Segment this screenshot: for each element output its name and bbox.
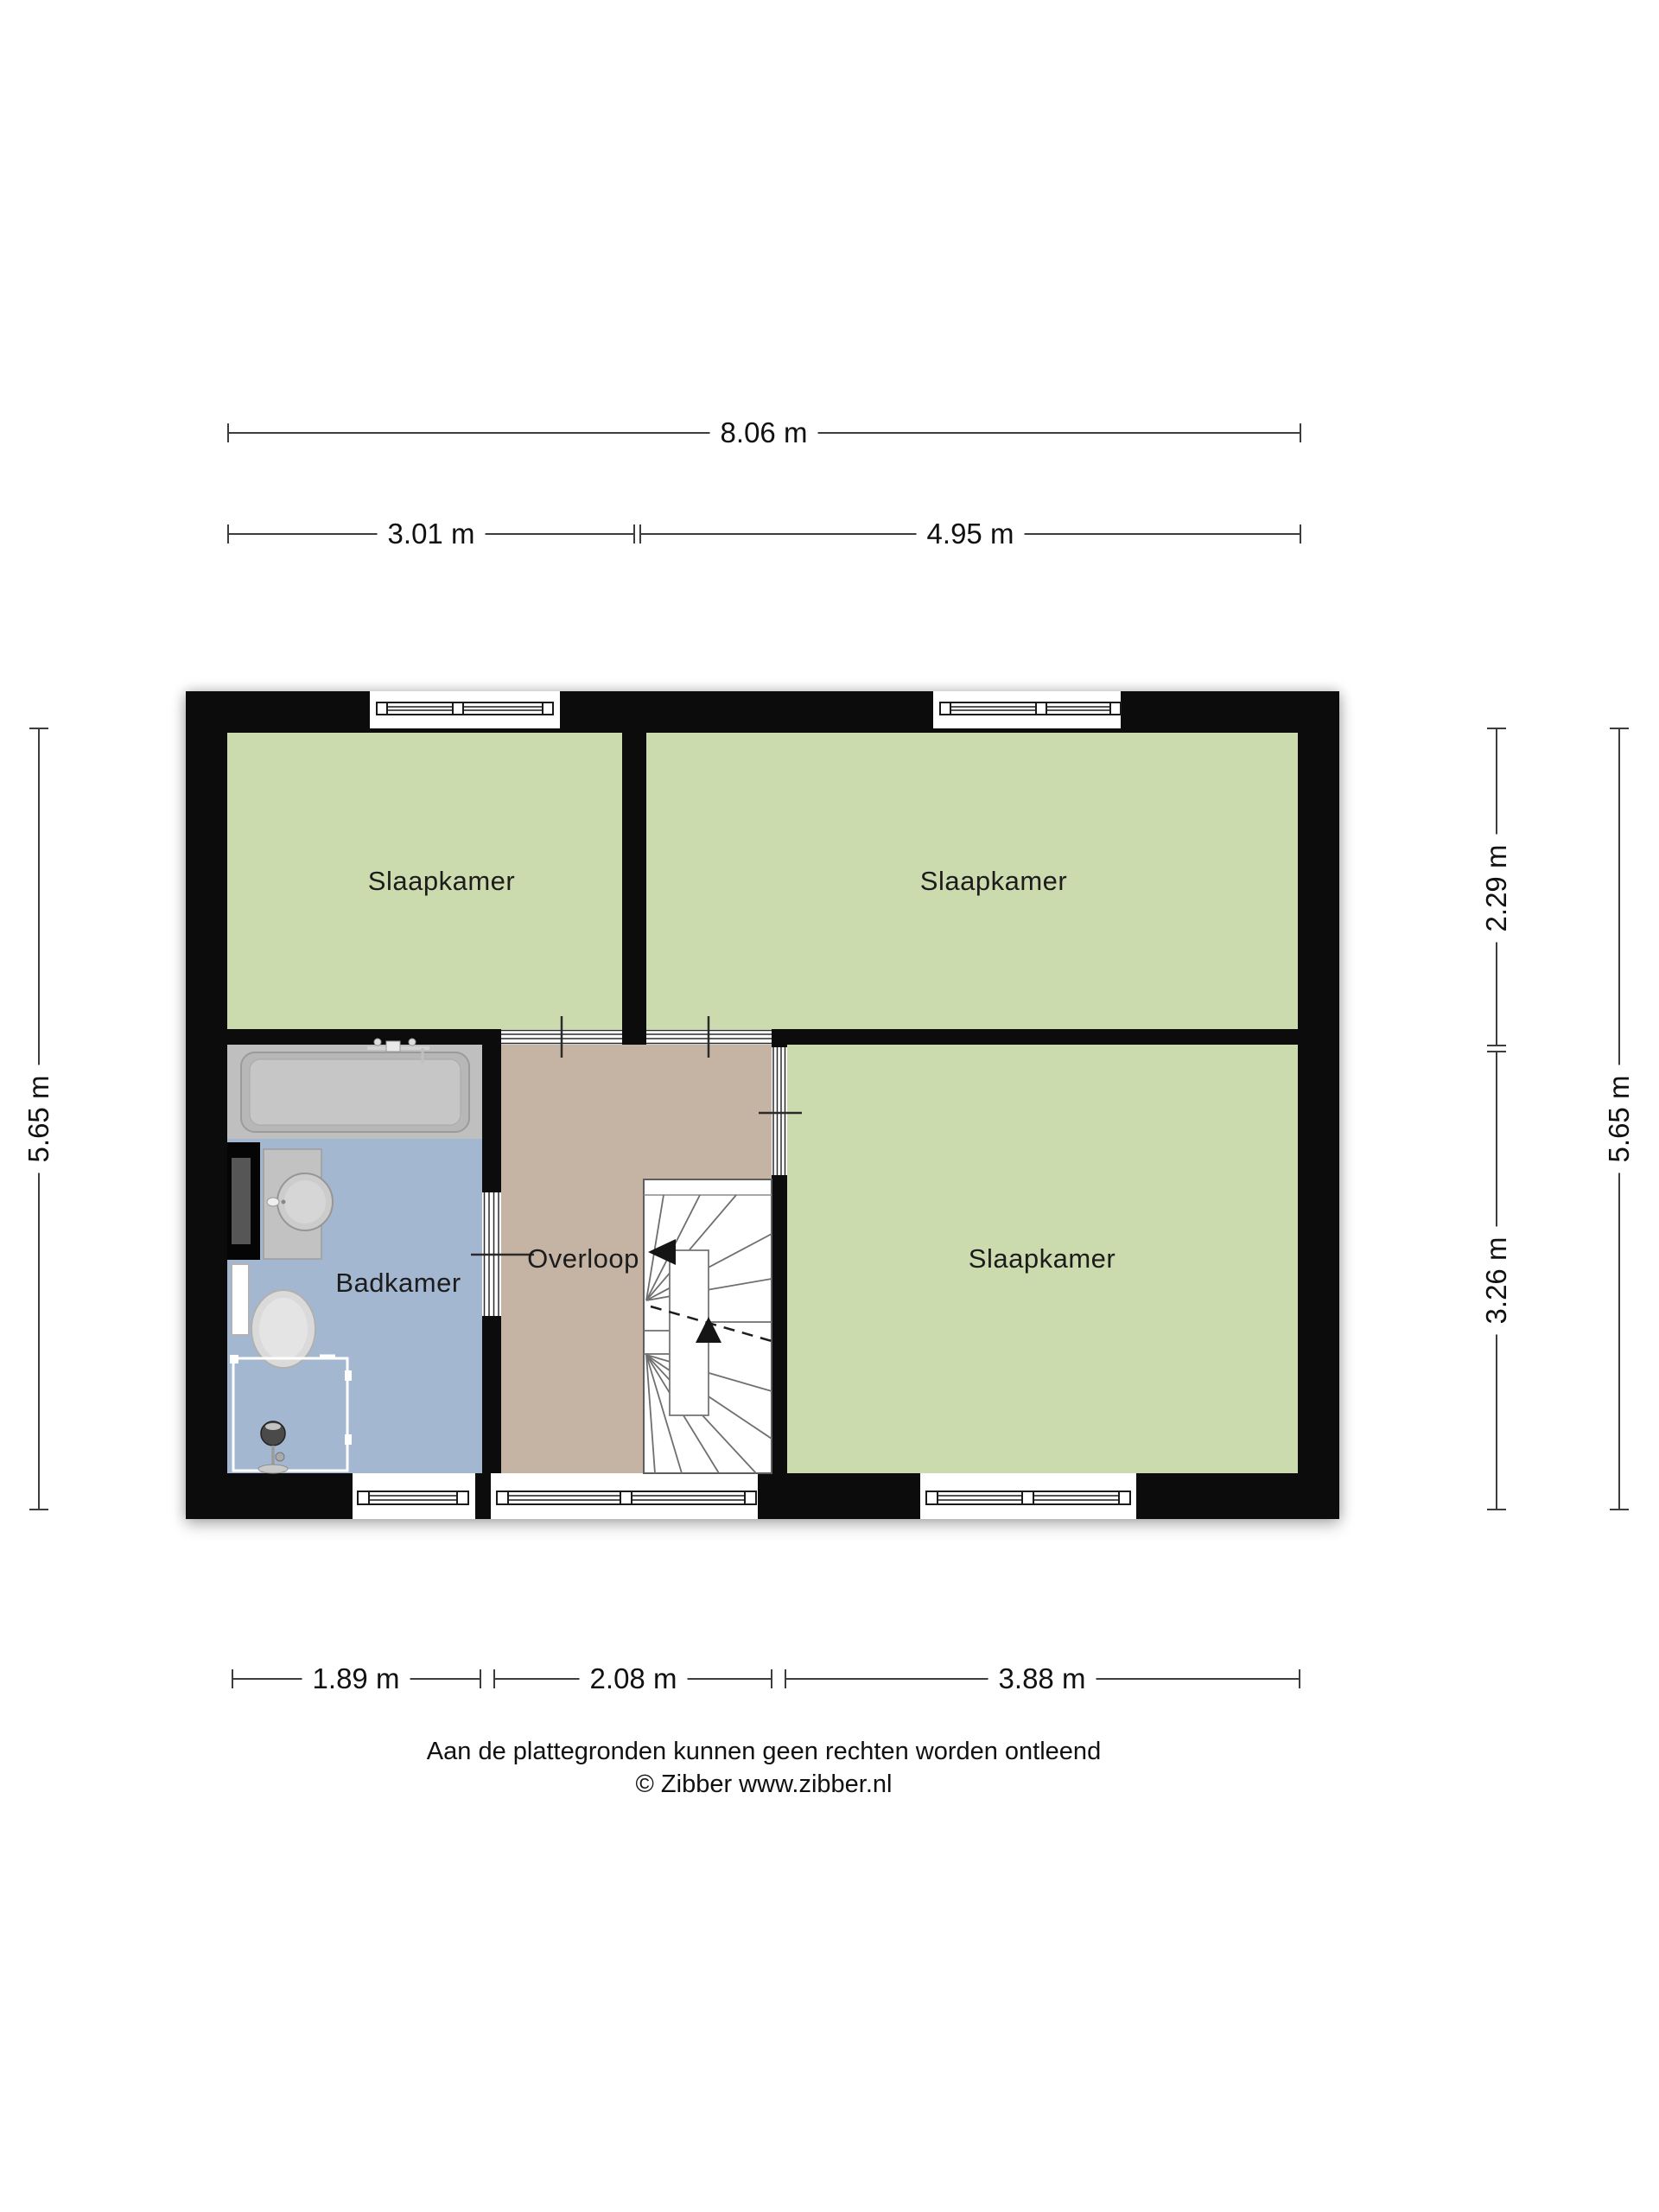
room-label-landing: Overloop <box>527 1243 639 1274</box>
room-label-bedroom-bottom-right: Slaapkamer <box>969 1243 1116 1274</box>
dim-right-total: 5.65 m <box>1601 1065 1637 1173</box>
disclaimer-line1: Aan de plattegronden kunnen geen rechten… <box>427 1735 1101 1768</box>
dim-bottom-left: 1.89 m <box>302 1661 410 1697</box>
dim-top-right: 4.95 m <box>917 516 1025 552</box>
room-label-bedroom-top-left: Slaapkamer <box>368 866 515 897</box>
dim-top-left: 3.01 m <box>378 516 486 552</box>
dim-left-total: 5.65 m <box>21 1065 57 1173</box>
dim-right-bottom: 3.26 m <box>1478 1227 1515 1335</box>
room-label-bathroom: Badkamer <box>335 1268 461 1299</box>
dim-top-total: 8.06 m <box>710 415 818 451</box>
dim-right-top: 2.29 m <box>1478 835 1515 943</box>
dim-bottom-middle: 2.08 m <box>580 1661 688 1697</box>
dim-bottom-right: 3.88 m <box>988 1661 1096 1697</box>
room-bathroom <box>227 1139 482 1473</box>
floor-plan <box>186 691 1339 1519</box>
disclaimer-line2: © Zibber www.zibber.nl <box>427 1768 1101 1801</box>
disclaimer: Aan de plattegronden kunnen geen rechten… <box>427 1735 1101 1801</box>
bathtub-deck <box>227 1045 482 1139</box>
room-label-bedroom-top-right: Slaapkamer <box>920 866 1067 897</box>
floorplan-page: { "floorplan": { "title": "Eerste verdie… <box>0 0 1659 2212</box>
